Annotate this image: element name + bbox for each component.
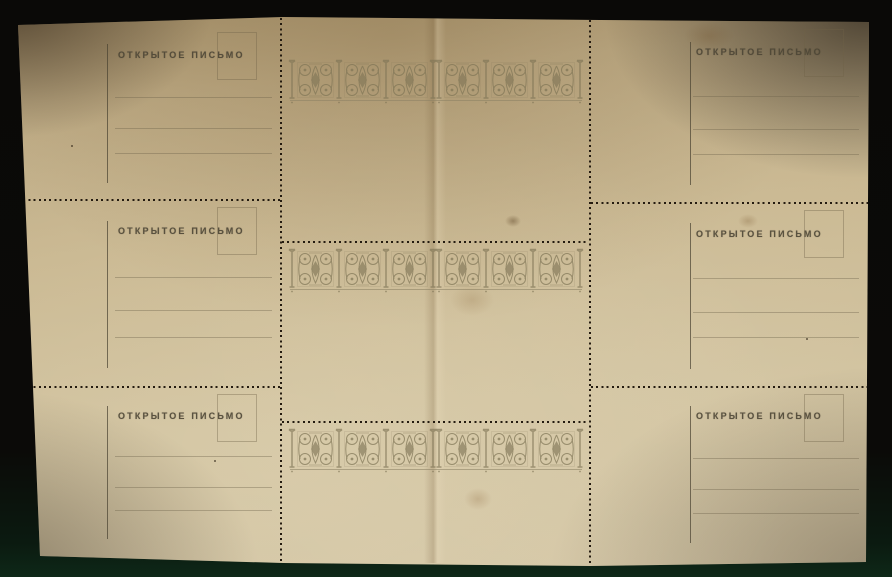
scroll-and-lozenge-frieze-icon bbox=[288, 58, 584, 104]
address-line bbox=[693, 129, 859, 130]
postcard-back: ОТКРЫТОЕ ПИСЬМО bbox=[18, 25, 281, 200]
address-line bbox=[115, 337, 272, 338]
address-line bbox=[693, 337, 859, 338]
postcard-back: ОТКРЫТОЕ ПИСЬМО bbox=[590, 22, 869, 203]
divider-line bbox=[107, 44, 108, 182]
divider-line bbox=[690, 42, 691, 185]
postcard-front bbox=[281, 20, 590, 242]
postcard-sheet: ОТКРЫТОЕ ПИСЬМО ОТКРЫТОЕ ПИСЬМО ОТКРЫТОЕ… bbox=[0, 0, 892, 577]
stamp-box bbox=[217, 32, 257, 80]
address-line bbox=[115, 310, 272, 311]
address-line bbox=[115, 128, 272, 129]
postcard-front bbox=[281, 422, 590, 562]
divider-line bbox=[690, 406, 691, 543]
address-line bbox=[115, 277, 272, 278]
stamp-box bbox=[217, 394, 257, 442]
photo-background: { "scene": { "background_color": "#0a090… bbox=[0, 0, 892, 577]
address-line bbox=[115, 153, 272, 154]
stamp-box bbox=[804, 29, 844, 77]
address-line bbox=[115, 487, 272, 488]
scroll-and-lozenge-frieze-icon bbox=[288, 427, 584, 473]
address-line bbox=[115, 456, 272, 457]
stamp-box bbox=[804, 210, 844, 258]
postcard-back: ОТКРЫТОЕ ПИСЬМО bbox=[590, 387, 869, 560]
postcard-front bbox=[281, 242, 590, 422]
address-line bbox=[693, 489, 859, 490]
divider-line bbox=[107, 406, 108, 540]
address-line bbox=[115, 97, 272, 98]
address-line bbox=[693, 96, 859, 97]
address-line bbox=[693, 312, 859, 313]
address-line bbox=[115, 510, 272, 511]
scroll-and-lozenge-frieze-icon bbox=[288, 247, 584, 293]
stamp-box bbox=[804, 394, 844, 442]
postcard-back: ОТКРЫТОЕ ПИСЬМО bbox=[18, 200, 281, 387]
address-line bbox=[693, 154, 859, 155]
stamp-box bbox=[217, 207, 257, 255]
address-line bbox=[693, 278, 859, 279]
postcard-back: ОТКРЫТОЕ ПИСЬМО bbox=[590, 203, 869, 387]
address-line bbox=[693, 513, 859, 514]
address-line bbox=[693, 458, 859, 459]
postcard-back: ОТКРЫТОЕ ПИСЬМО bbox=[18, 387, 281, 556]
divider-line bbox=[690, 223, 691, 368]
divider-line bbox=[107, 221, 108, 369]
